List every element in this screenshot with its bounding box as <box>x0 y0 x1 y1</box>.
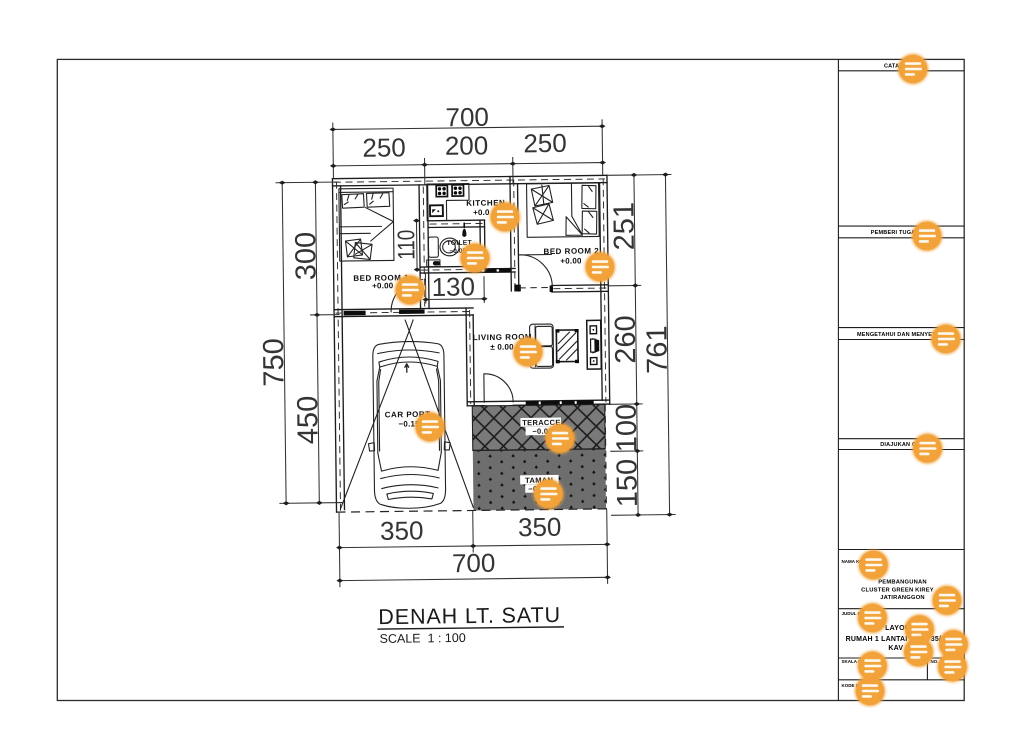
svg-text:CLUSTER GREEN KIREY: CLUSTER GREEN KIREY <box>861 587 934 593</box>
svg-text:110: 110 <box>393 230 420 260</box>
svg-text:130: 130 <box>431 271 475 302</box>
svg-text:350: 350 <box>518 512 562 543</box>
svg-text:+0.00: +0.00 <box>372 281 394 290</box>
svg-text:250: 250 <box>362 132 406 163</box>
svg-text:DENAH LT. SATU: DENAH LT. SATU <box>378 603 561 629</box>
svg-text:251: 251 <box>608 202 641 251</box>
svg-text:761: 761 <box>641 325 674 374</box>
svg-text:150: 150 <box>611 459 644 508</box>
svg-text:350: 350 <box>380 515 424 546</box>
svg-text:+0.00: +0.00 <box>560 256 582 265</box>
svg-text:300: 300 <box>290 232 323 281</box>
svg-text:250: 250 <box>523 128 567 159</box>
svg-text:200: 200 <box>445 130 489 161</box>
svg-text:SCALE 1 : 100: SCALE 1 : 100 <box>379 631 465 646</box>
svg-text:100: 100 <box>611 404 644 453</box>
svg-text:JATIRANGGON: JATIRANGGON <box>880 595 925 601</box>
svg-text:700: 700 <box>452 548 496 579</box>
svg-text:450: 450 <box>292 396 325 445</box>
svg-text:PEMBANGUNAN: PEMBANGUNAN <box>878 580 927 586</box>
svg-text:750: 750 <box>258 338 291 387</box>
svg-text:260: 260 <box>610 315 643 364</box>
svg-text:700: 700 <box>445 102 489 133</box>
